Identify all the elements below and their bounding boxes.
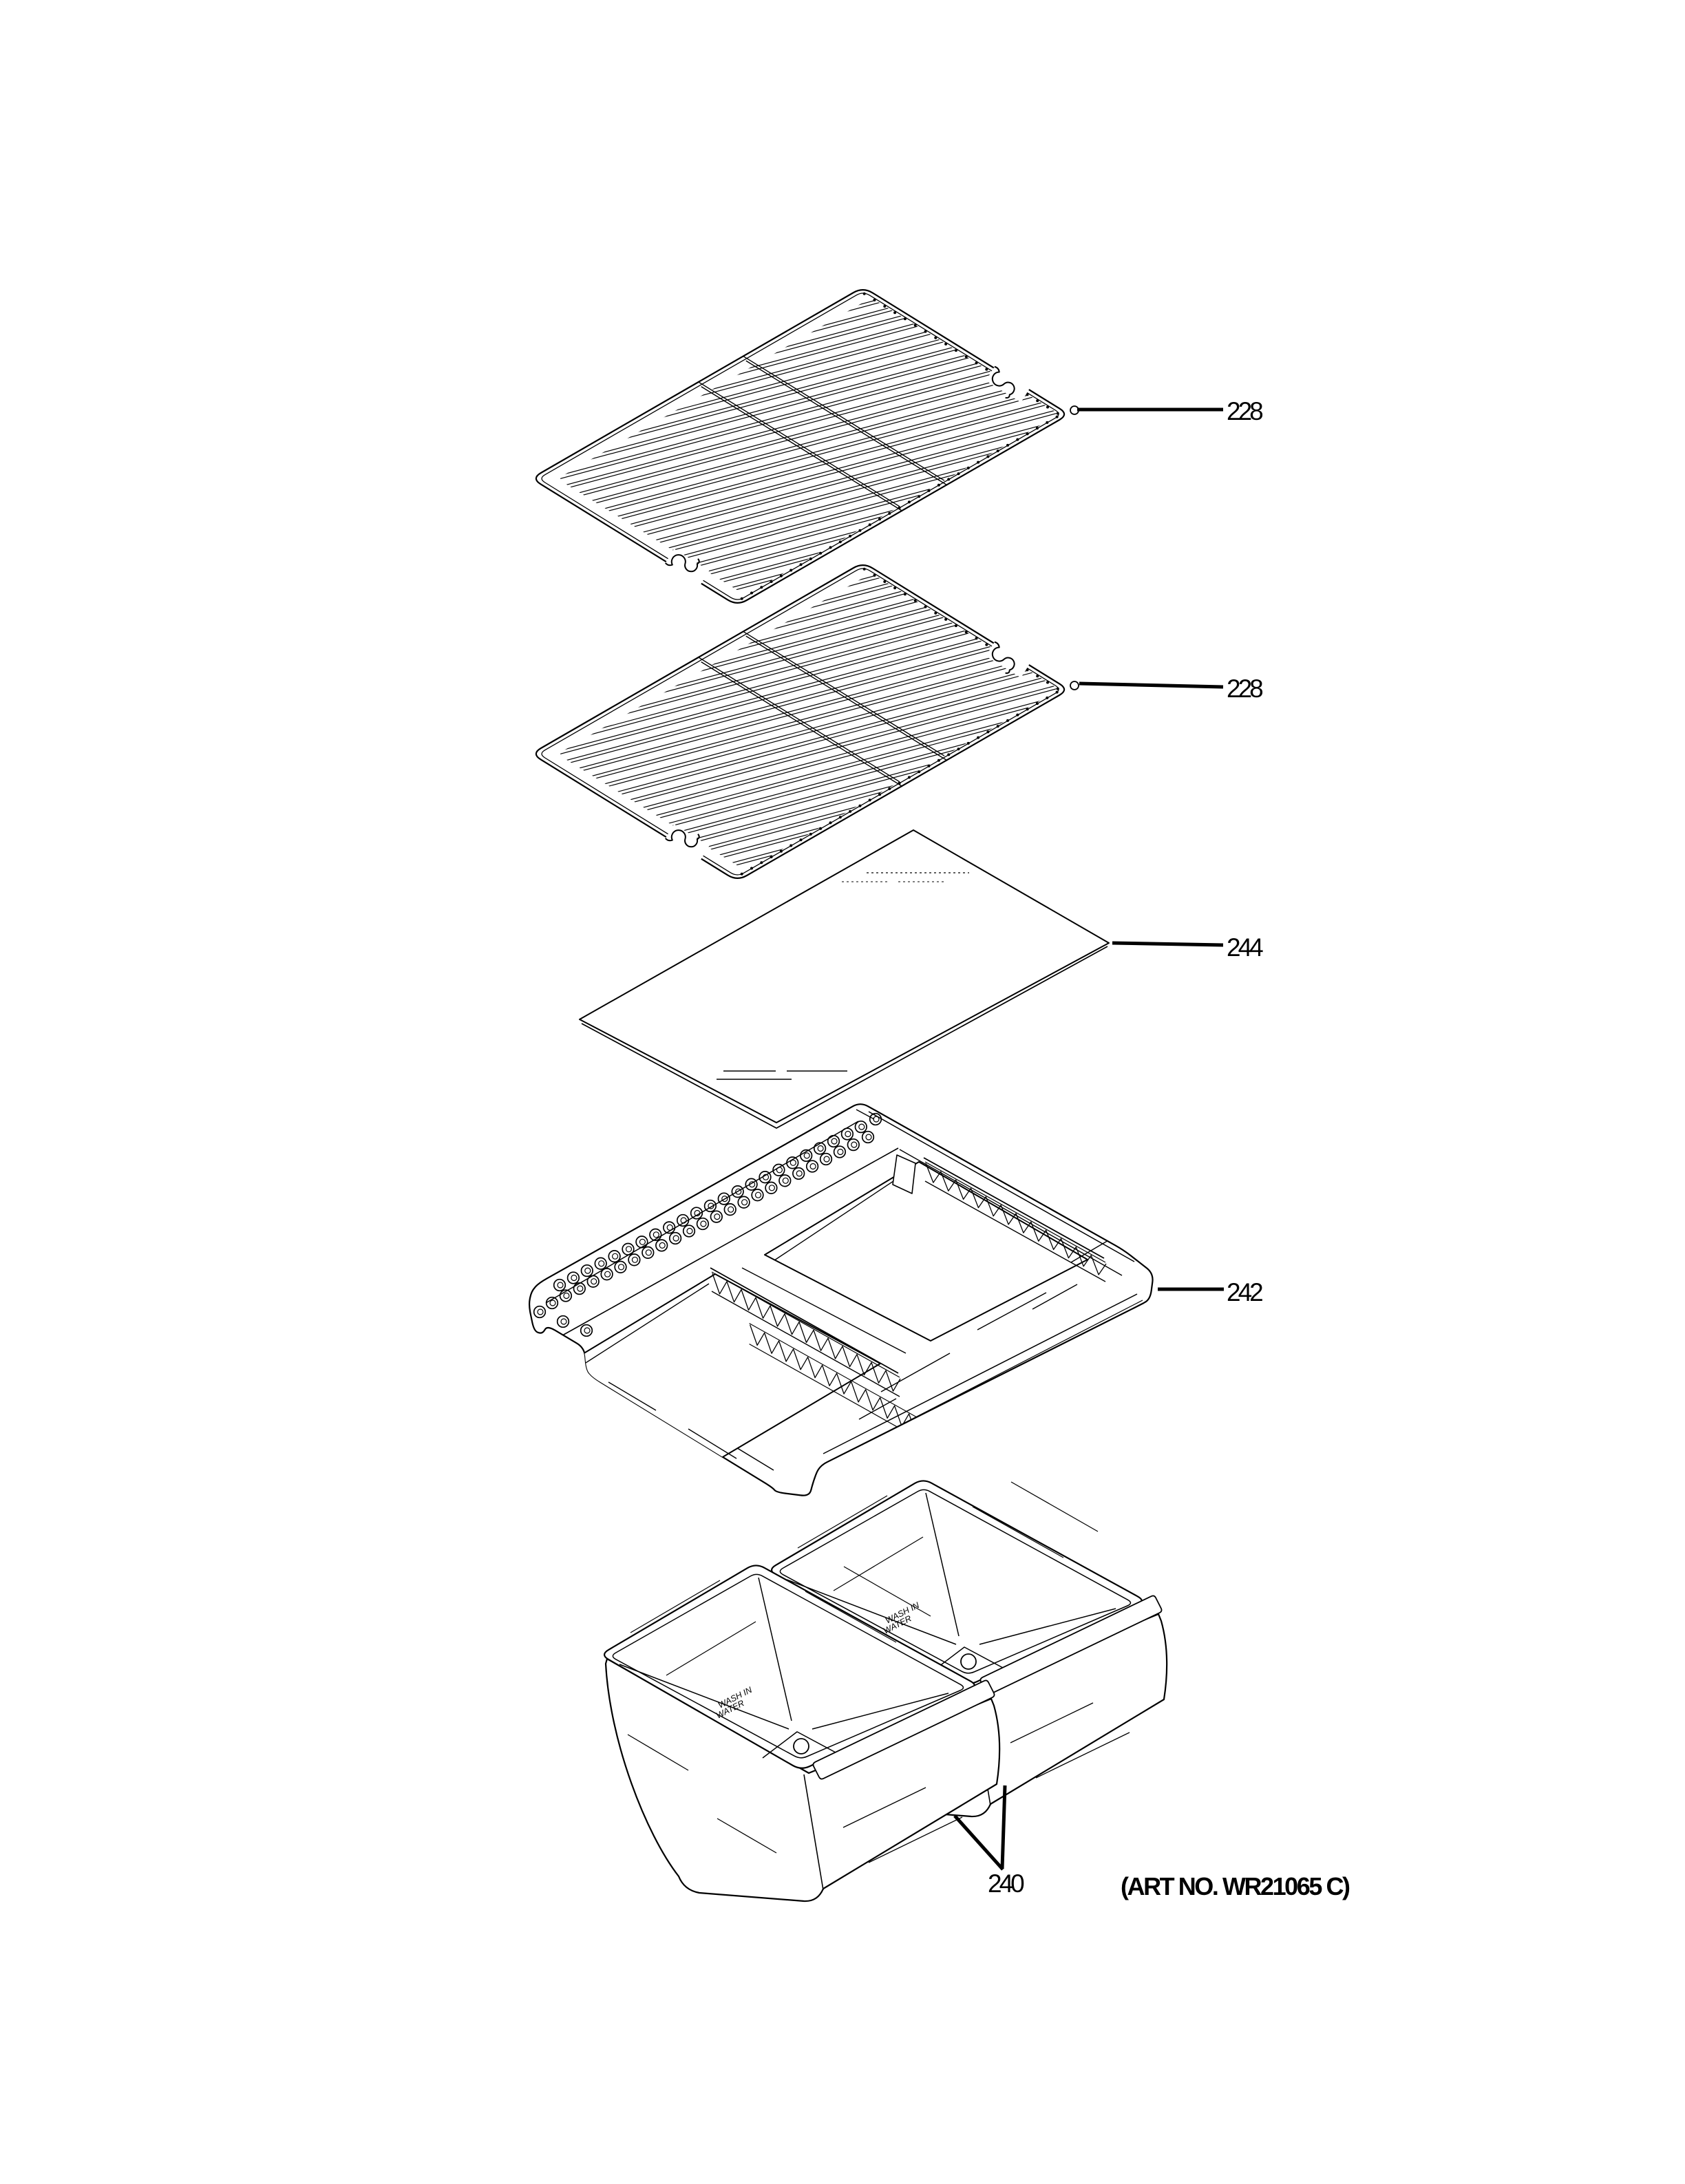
svg-text:228: 228 — [1227, 397, 1262, 425]
svg-text:242: 242 — [1227, 1278, 1262, 1306]
svg-text:(ART NO. WR21065 C): (ART NO. WR21065 C) — [1121, 1872, 1350, 1900]
svg-text:228: 228 — [1227, 675, 1262, 703]
svg-text:244: 244 — [1227, 933, 1263, 962]
svg-text:240: 240 — [988, 1869, 1024, 1898]
